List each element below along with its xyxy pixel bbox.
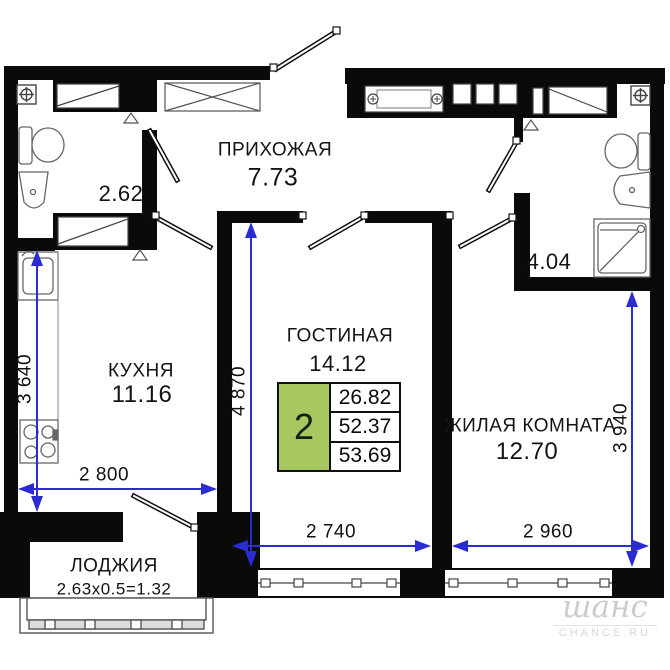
door-bath-big-icon — [489, 141, 517, 190]
toilet-icon — [19, 127, 64, 164]
door-kitchen-icon — [157, 218, 210, 247]
door-loggia-icon — [134, 496, 195, 528]
apartment-info-table: 2 26.82 52.37 53.69 — [277, 382, 401, 472]
room-area-kitchen: 11.16 — [112, 383, 173, 407]
total-area-value: 53.69 — [331, 443, 399, 470]
room-label-bedroom: ЖИЛАЯ КОМНАТА — [444, 417, 616, 436]
floor-plan: ПРИХОЖАЯ 7.73 2.62 4.04 КУХНЯ 11.16 ГОСТ… — [0, 0, 670, 670]
room-label-loggia: ЛОДЖИЯ — [70, 557, 158, 576]
closet-icon — [58, 217, 128, 246]
room-label-living: ГОСТИНАЯ — [287, 327, 393, 346]
entrance-door-icon — [276, 31, 337, 69]
sink-icon — [19, 172, 48, 208]
radiator-icon — [365, 86, 443, 112]
window-icon — [445, 570, 612, 596]
dim-label-living-depth: 4 870 — [230, 366, 249, 416]
window-icon — [258, 570, 400, 596]
vent-icon — [17, 85, 36, 104]
dim-label-bedroom-width: 2 960 — [523, 523, 573, 542]
room-label-hallway: ПРИХОЖАЯ — [218, 141, 332, 160]
room-area-bath-big: 4.04 — [527, 251, 572, 273]
dim-label-kitchen-width: 2 800 — [79, 466, 129, 485]
room-area-loggia: 2.63x0.5=1.32 — [57, 581, 172, 598]
apartment-area-value: 52.37 — [331, 413, 399, 442]
dim-label-kitchen-depth: 3 640 — [16, 354, 35, 404]
wardrobe-icon — [165, 83, 260, 111]
shower-icon — [594, 219, 650, 277]
sink-icon — [614, 172, 650, 208]
door-bedroom-icon — [461, 218, 513, 246]
room-label-kitchen: КУХНЯ — [108, 362, 174, 381]
rooms-count: 2 — [279, 384, 331, 470]
room-area-bedroom: 12.70 — [496, 440, 559, 464]
living-area-value: 26.82 — [331, 384, 399, 413]
room-area-bath-small: 2.62 — [99, 183, 144, 205]
balcony-glazing-icon — [20, 598, 213, 633]
room-area-hallway: 7.73 — [248, 166, 299, 191]
stove-icon — [20, 420, 58, 463]
dim-label-living-width: 2 740 — [306, 523, 356, 542]
dim-label-bedroom-depth: 3 940 — [612, 403, 631, 453]
vent-icon — [631, 86, 650, 105]
door-living-icon — [311, 216, 365, 247]
shelf-icon — [549, 87, 607, 114]
toilet-icon — [605, 133, 650, 170]
room-area-living: 14.12 — [309, 353, 367, 375]
wall-cabinet-icon — [57, 84, 119, 108]
